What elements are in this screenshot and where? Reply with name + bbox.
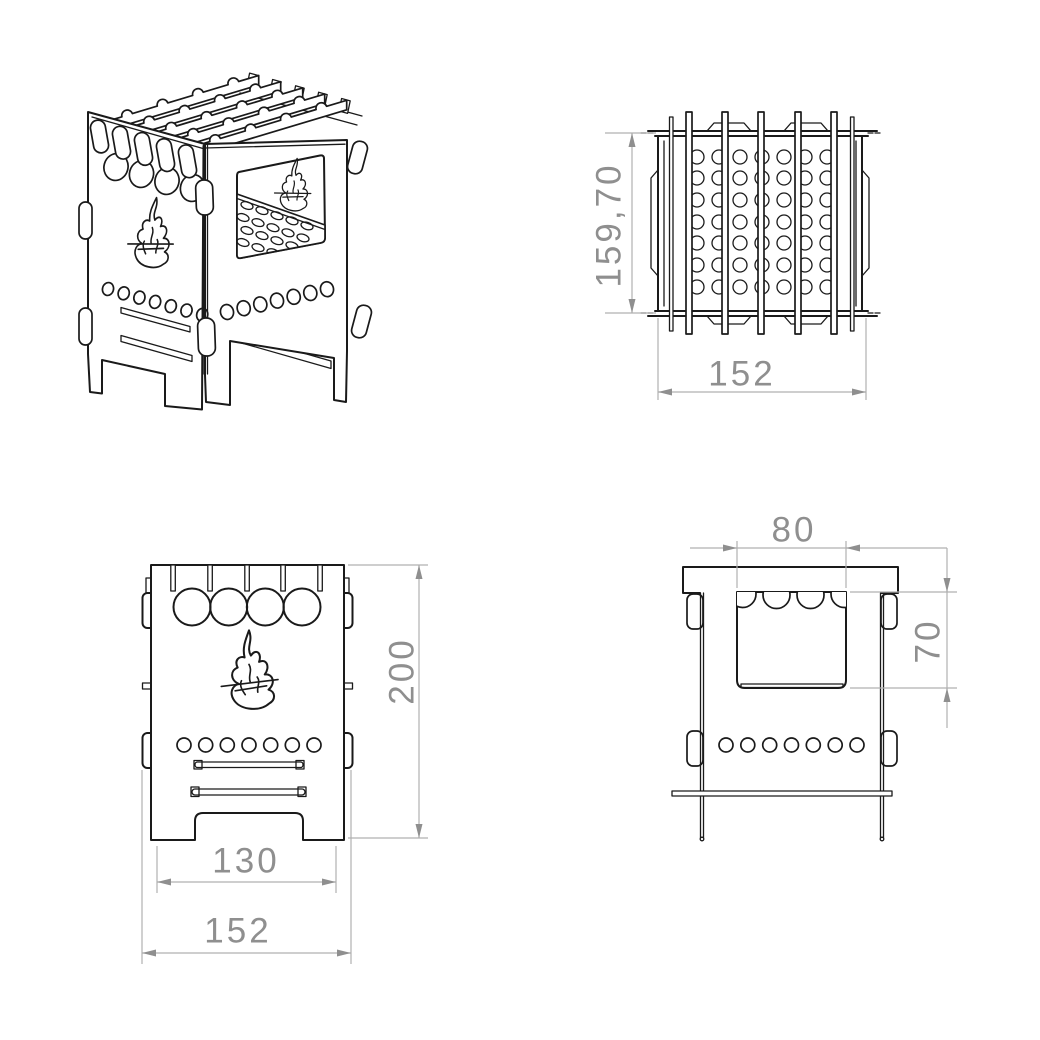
top-view-grill-bars bbox=[670, 112, 855, 334]
dim-label-130: 130 bbox=[212, 842, 279, 881]
dim-label-front-152: 152 bbox=[204, 912, 271, 951]
front-view-legspan-dimension: 130 bbox=[157, 842, 336, 894]
dim-label-70: 70 bbox=[909, 619, 948, 664]
iso-left-tab-mid bbox=[79, 308, 92, 345]
side-view-vent-holes bbox=[719, 738, 864, 752]
front-view: 200 130 152 bbox=[142, 565, 428, 964]
iso-corner-tab-mid bbox=[197, 318, 215, 357]
side-view-top-cap bbox=[683, 567, 898, 593]
side-view-window-opening bbox=[737, 592, 846, 688]
dim-label-200: 200 bbox=[383, 637, 422, 704]
side-view-window-height-dimension: 70 bbox=[850, 548, 957, 728]
side-view-window-width-dimension: 80 bbox=[690, 511, 947, 589]
top-view-height-dimension: 159,70 bbox=[590, 133, 657, 313]
side-view-bottom-plate bbox=[672, 791, 892, 796]
iso-corner-tab-top bbox=[195, 180, 213, 216]
dim-label-159-70: 159,70 bbox=[590, 162, 629, 287]
iso-left-tab-top bbox=[79, 202, 92, 239]
iso-back-tab-top bbox=[346, 140, 369, 176]
iso-back-tab-mid bbox=[350, 304, 373, 340]
front-view-height-dimension: 200 bbox=[348, 565, 428, 838]
top-view: 159,70 152 bbox=[590, 112, 883, 400]
side-view: 80 70 bbox=[672, 511, 957, 841]
dim-label-80: 80 bbox=[772, 511, 817, 550]
isometric-view bbox=[79, 73, 373, 409]
dim-label-top-152: 152 bbox=[708, 355, 775, 394]
drawing-sheet: 159,70 152 bbox=[0, 0, 1040, 1040]
